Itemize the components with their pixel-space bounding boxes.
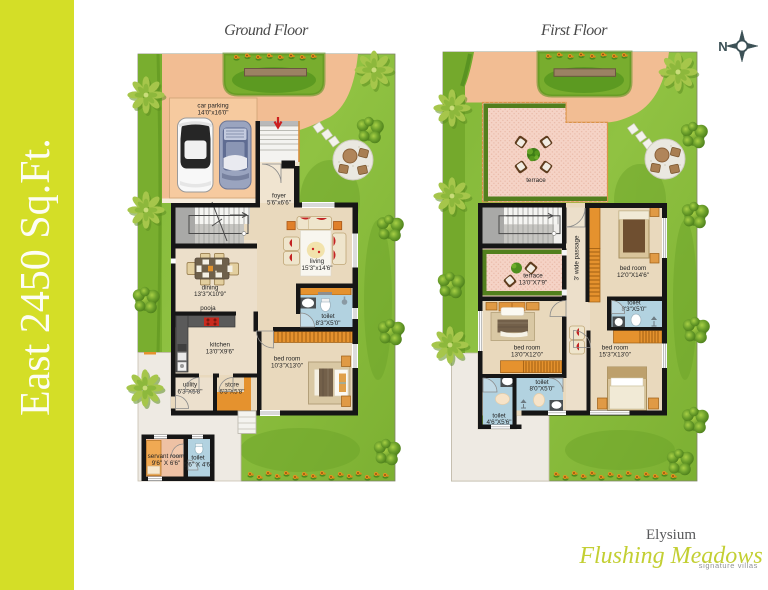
svg-text:N: N xyxy=(718,39,727,54)
svg-text:bed room: bed room xyxy=(274,356,301,363)
svg-text:foyer: foyer xyxy=(272,193,286,200)
svg-text:5'6"x6'6": 5'6"x6'6" xyxy=(267,200,291,207)
svg-text:14'0"x16'0": 14'0"x16'0" xyxy=(197,110,228,117)
svg-text:8'3"X5'0": 8'3"X5'0" xyxy=(621,306,646,313)
svg-text:terrace: terrace xyxy=(523,273,543,280)
svg-text:5'6" X 4'6": 5'6" X 4'6" xyxy=(184,462,213,469)
svg-text:Elysium: Elysium xyxy=(646,527,696,543)
svg-text:13'0"X7'9": 13'0"X7'9" xyxy=(519,280,548,287)
svg-text:15'3"x14'6": 15'3"x14'6" xyxy=(301,265,332,272)
svg-text:East 2450 Sq.Ft.: East 2450 Sq.Ft. xyxy=(13,138,59,416)
svg-text:car parking: car parking xyxy=(197,103,229,110)
svg-text:pooja: pooja xyxy=(200,305,216,312)
svg-text:bed room: bed room xyxy=(602,345,629,352)
svg-text:terrace: terrace xyxy=(526,177,546,184)
svg-text:First Floor: First Floor xyxy=(540,22,608,39)
svg-text:12'0"X14'6": 12'0"X14'6" xyxy=(617,272,649,279)
svg-text:signature villas: signature villas xyxy=(699,561,758,570)
svg-text:13'0"X12'0": 13'0"X12'0" xyxy=(511,352,543,359)
svg-text:toilet: toilet xyxy=(191,455,205,462)
svg-text:living: living xyxy=(310,258,325,265)
svg-text:8'3"X5'0": 8'3"X5'0" xyxy=(315,320,340,327)
svg-text:Ground Floor: Ground Floor xyxy=(224,22,309,39)
svg-text:3' wide passage: 3' wide passage xyxy=(574,235,581,280)
svg-text:10'3"X13'0": 10'3"X13'0" xyxy=(271,363,303,370)
svg-text:8'0"X5'0": 8'0"X5'0" xyxy=(529,386,554,393)
svg-text:13'3"X10'9": 13'3"X10'9" xyxy=(194,291,226,298)
svg-text:15'3"X13'0": 15'3"X13'0" xyxy=(599,352,631,359)
svg-text:9'6" X 6'6": 9'6" X 6'6" xyxy=(152,460,181,467)
svg-text:bed room: bed room xyxy=(620,265,647,272)
svg-text:bed room: bed room xyxy=(514,345,541,352)
svg-text:13'0"X9'6": 13'0"X9'6" xyxy=(206,349,235,356)
svg-text:kitchen: kitchen xyxy=(210,342,230,349)
svg-text:toilet: toilet xyxy=(321,313,335,320)
svg-text:servant room: servant room xyxy=(148,453,185,460)
